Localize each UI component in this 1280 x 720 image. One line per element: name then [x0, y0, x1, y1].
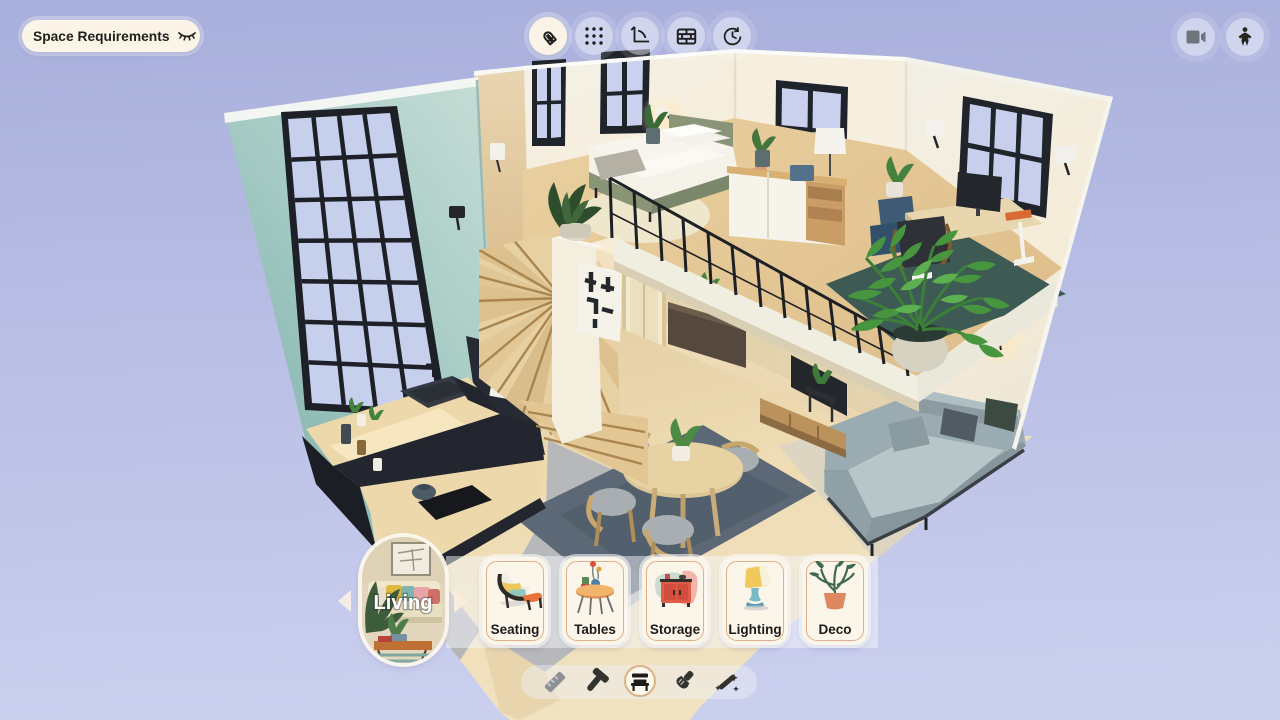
- svg-text:Living: Living: [374, 592, 433, 614]
